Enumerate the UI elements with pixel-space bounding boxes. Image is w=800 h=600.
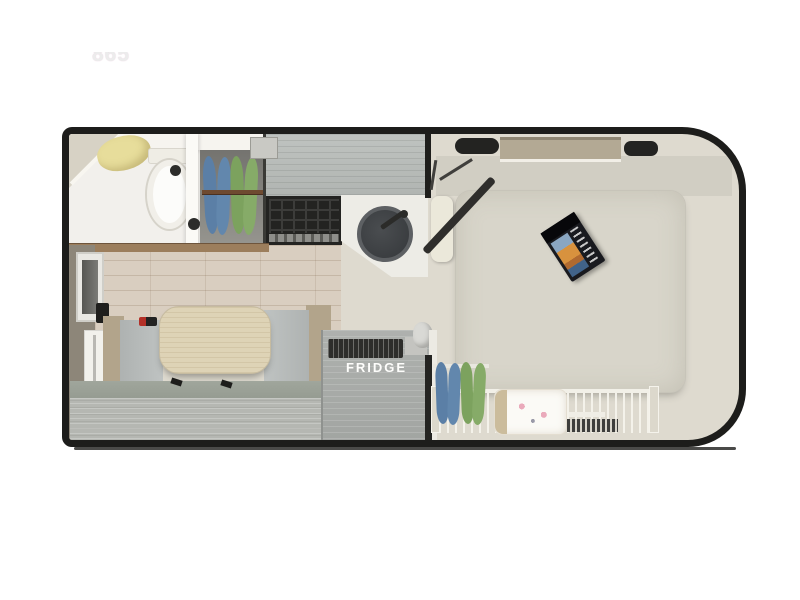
throw-pillow (494, 389, 567, 435)
wardrobe-top-shelf (250, 137, 278, 159)
condiment-items (139, 317, 157, 326)
ground-shadow (74, 447, 736, 450)
kitchen-counter (266, 134, 431, 198)
fridge-vent-grille (328, 339, 403, 358)
floorplan-scene: 865 (0, 0, 800, 600)
cooktop (266, 196, 342, 245)
cooktop-grate (269, 199, 339, 233)
window-slot-left (455, 138, 499, 154)
pillow-trim (495, 390, 507, 434)
floor-vent-grille (567, 419, 618, 432)
dinette-table (159, 306, 271, 374)
model-number-label: 865 (92, 52, 152, 67)
shower-drain-icon (170, 165, 181, 176)
floor-vent-bar (569, 412, 605, 417)
fridge-cabinet: FRIDGE (321, 330, 430, 440)
pillow-pattern (513, 398, 557, 426)
dinette-bench-left (120, 320, 163, 386)
counter-edge-strip (69, 243, 269, 252)
storage-bench-front (70, 398, 324, 440)
rail-post-right (649, 386, 659, 433)
louver-line (93, 335, 96, 387)
model-number-text: 865 (92, 52, 152, 67)
cooktop-knobs (269, 234, 339, 242)
nose-window (500, 137, 621, 159)
window-slot-right (624, 141, 658, 156)
camper-shell-outline: FRIDGE (62, 127, 746, 447)
fridge-label: FRIDGE (323, 360, 430, 375)
wardrobe-hanging-rod (202, 190, 264, 195)
sink-faucet-base (400, 210, 408, 218)
